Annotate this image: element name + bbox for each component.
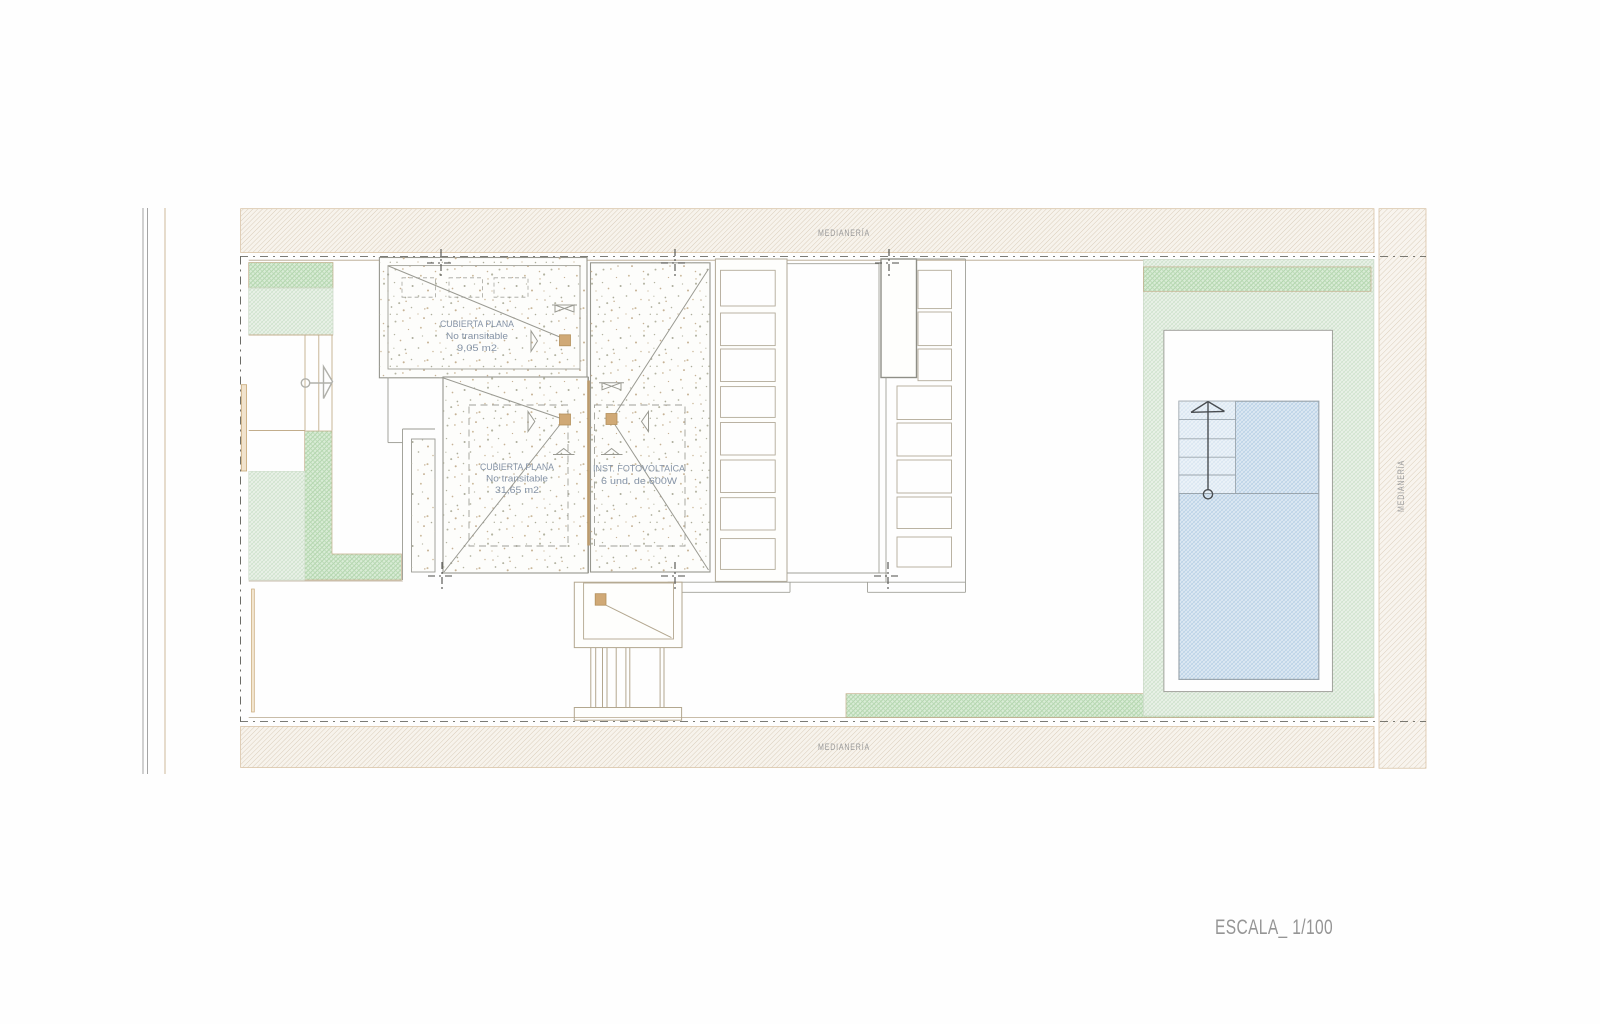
svg-text:CUBIERTA PLANA: CUBIERTA PLANA bbox=[480, 462, 555, 473]
svg-text:ESCALA_ 1/100: ESCALA_ 1/100 bbox=[1215, 916, 1333, 939]
svg-text:CUBIERTA PLANA: CUBIERTA PLANA bbox=[440, 319, 515, 330]
svg-text:9,05 m2: 9,05 m2 bbox=[457, 343, 497, 353]
svg-text:MEDIANERÍA: MEDIANERÍA bbox=[818, 228, 870, 238]
svg-text:INST. FOTOVOLTAICA: INST. FOTOVOLTAICA bbox=[593, 464, 686, 475]
svg-text:MEDIANERÍA: MEDIANERÍA bbox=[1396, 460, 1406, 512]
svg-text:31,65 m2: 31,65 m2 bbox=[495, 485, 539, 495]
svg-text:MEDIANERÍA: MEDIANERÍA bbox=[818, 742, 870, 752]
svg-text:No transitable: No transitable bbox=[486, 474, 548, 484]
svg-text:No transitable: No transitable bbox=[446, 331, 508, 341]
svg-text:6 und. de 600W: 6 und. de 600W bbox=[601, 476, 677, 486]
